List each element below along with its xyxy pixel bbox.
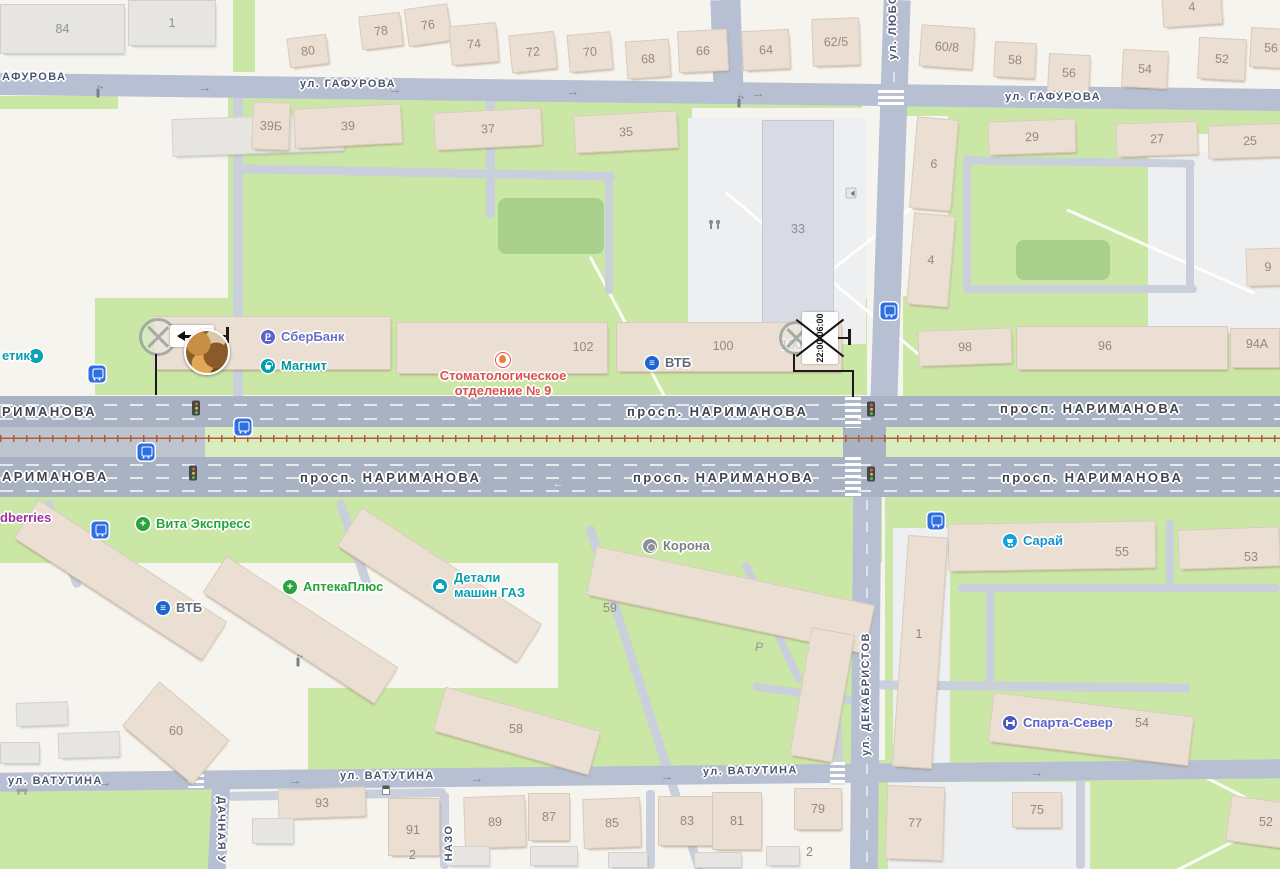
annotation-pointer-line [155, 354, 157, 395]
time-end-bar [848, 329, 851, 345]
photo-marker[interactable] [184, 329, 230, 375]
time-connector-line [838, 337, 848, 339]
leader-line-v2 [852, 370, 854, 397]
annotations-layer: 100 22:00-06:00 [0, 0, 1280, 869]
leader-line-h [793, 370, 854, 372]
map-canvas[interactable]: 84180787674727068666462/560/858565452564… [0, 0, 1280, 869]
time-restriction-plate: 22:00-06:00 [802, 312, 838, 364]
